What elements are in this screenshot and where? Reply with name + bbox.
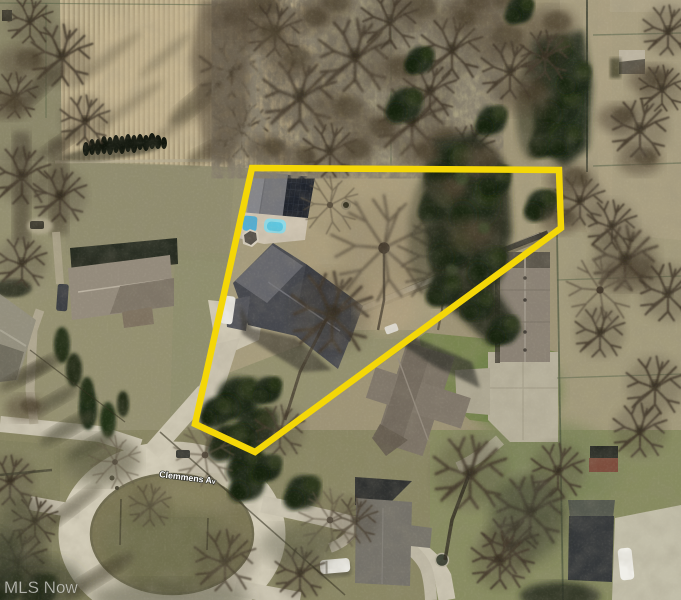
- svg-text:MLS Now: MLS Now: [4, 578, 78, 597]
